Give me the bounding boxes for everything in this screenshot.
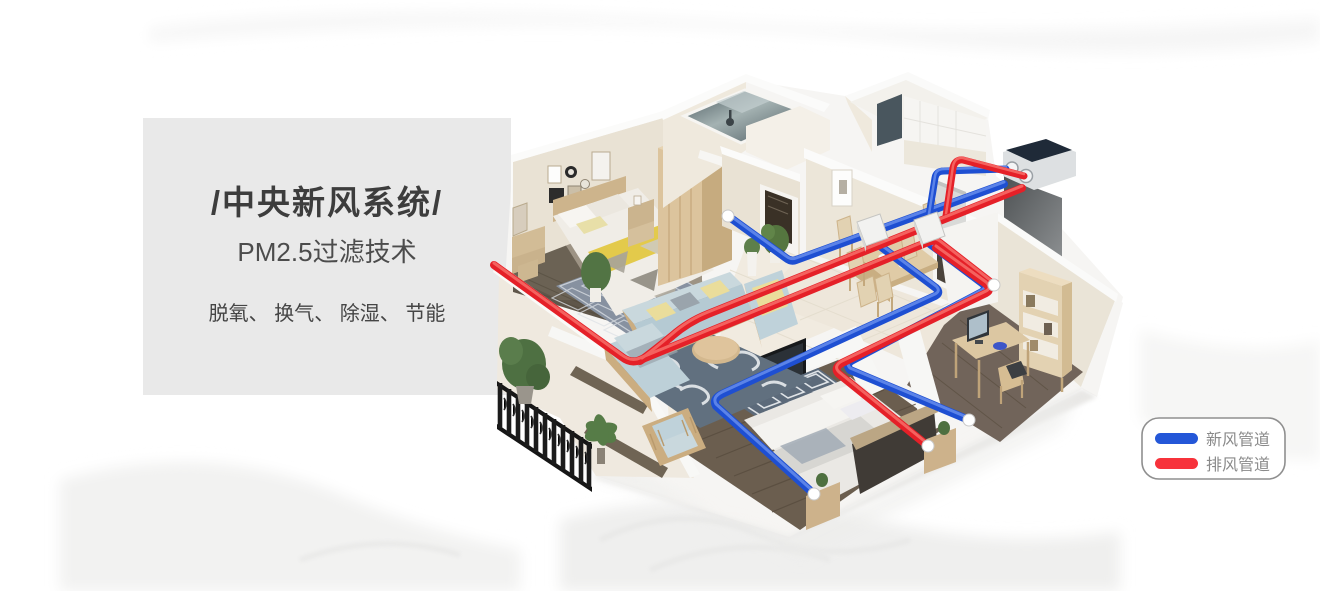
svg-text:新风管道: 新风管道 <box>1206 431 1270 449</box>
svg-text:排风管道: 排风管道 <box>1206 456 1270 474</box>
